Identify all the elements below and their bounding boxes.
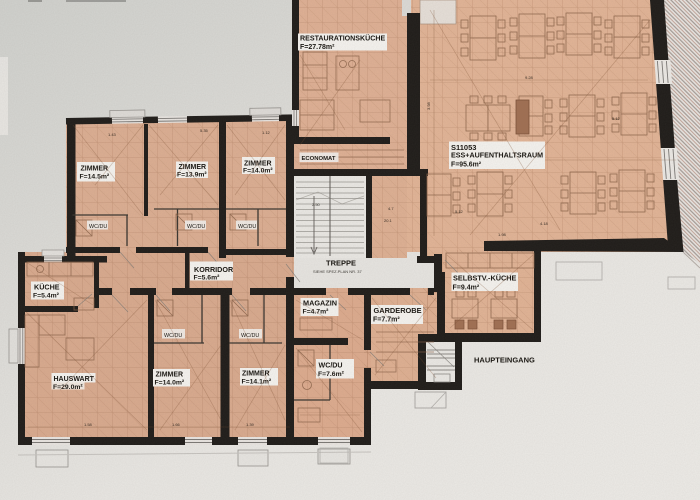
svg-text:5.12: 5.12 <box>612 116 621 121</box>
svg-text:5.12: 5.12 <box>455 209 464 214</box>
svg-text:1.58: 1.58 <box>84 422 93 427</box>
svg-text:1.66: 1.66 <box>172 422 181 427</box>
svg-text:4.7: 4.7 <box>388 206 394 211</box>
svg-text:9.28: 9.28 <box>525 75 534 80</box>
svg-text:2.50: 2.50 <box>312 202 321 207</box>
svg-text:1.39: 1.39 <box>246 422 255 427</box>
svg-text:1.98: 1.98 <box>498 232 507 237</box>
svg-text:1.12: 1.12 <box>262 130 271 135</box>
svg-text:1.43: 1.43 <box>108 132 117 137</box>
svg-text:4.18: 4.18 <box>540 221 549 226</box>
svg-text:3.98: 3.98 <box>426 101 431 110</box>
svg-text:20.1: 20.1 <box>384 218 393 223</box>
svg-text:5.35: 5.35 <box>200 128 209 133</box>
